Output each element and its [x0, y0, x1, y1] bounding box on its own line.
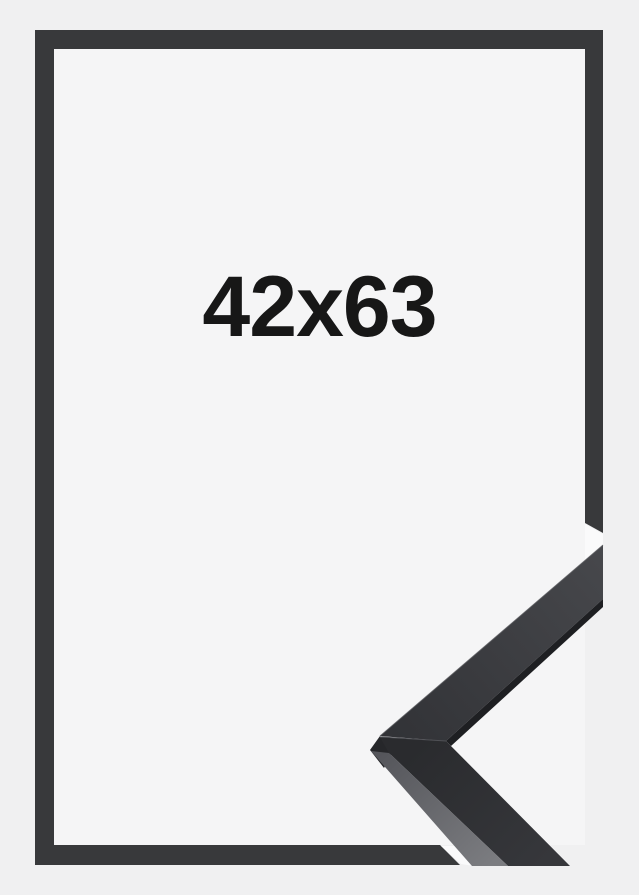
- frame-outline-left: [35, 30, 54, 865]
- size-label: 42x63: [0, 264, 639, 364]
- frame-outline-top: [35, 30, 603, 49]
- frame-inner-area: [54, 49, 585, 845]
- frame-product-image: 42x63: [0, 0, 639, 895]
- frame-outline-bottom: [35, 845, 460, 865]
- frame-graphic: [0, 0, 639, 895]
